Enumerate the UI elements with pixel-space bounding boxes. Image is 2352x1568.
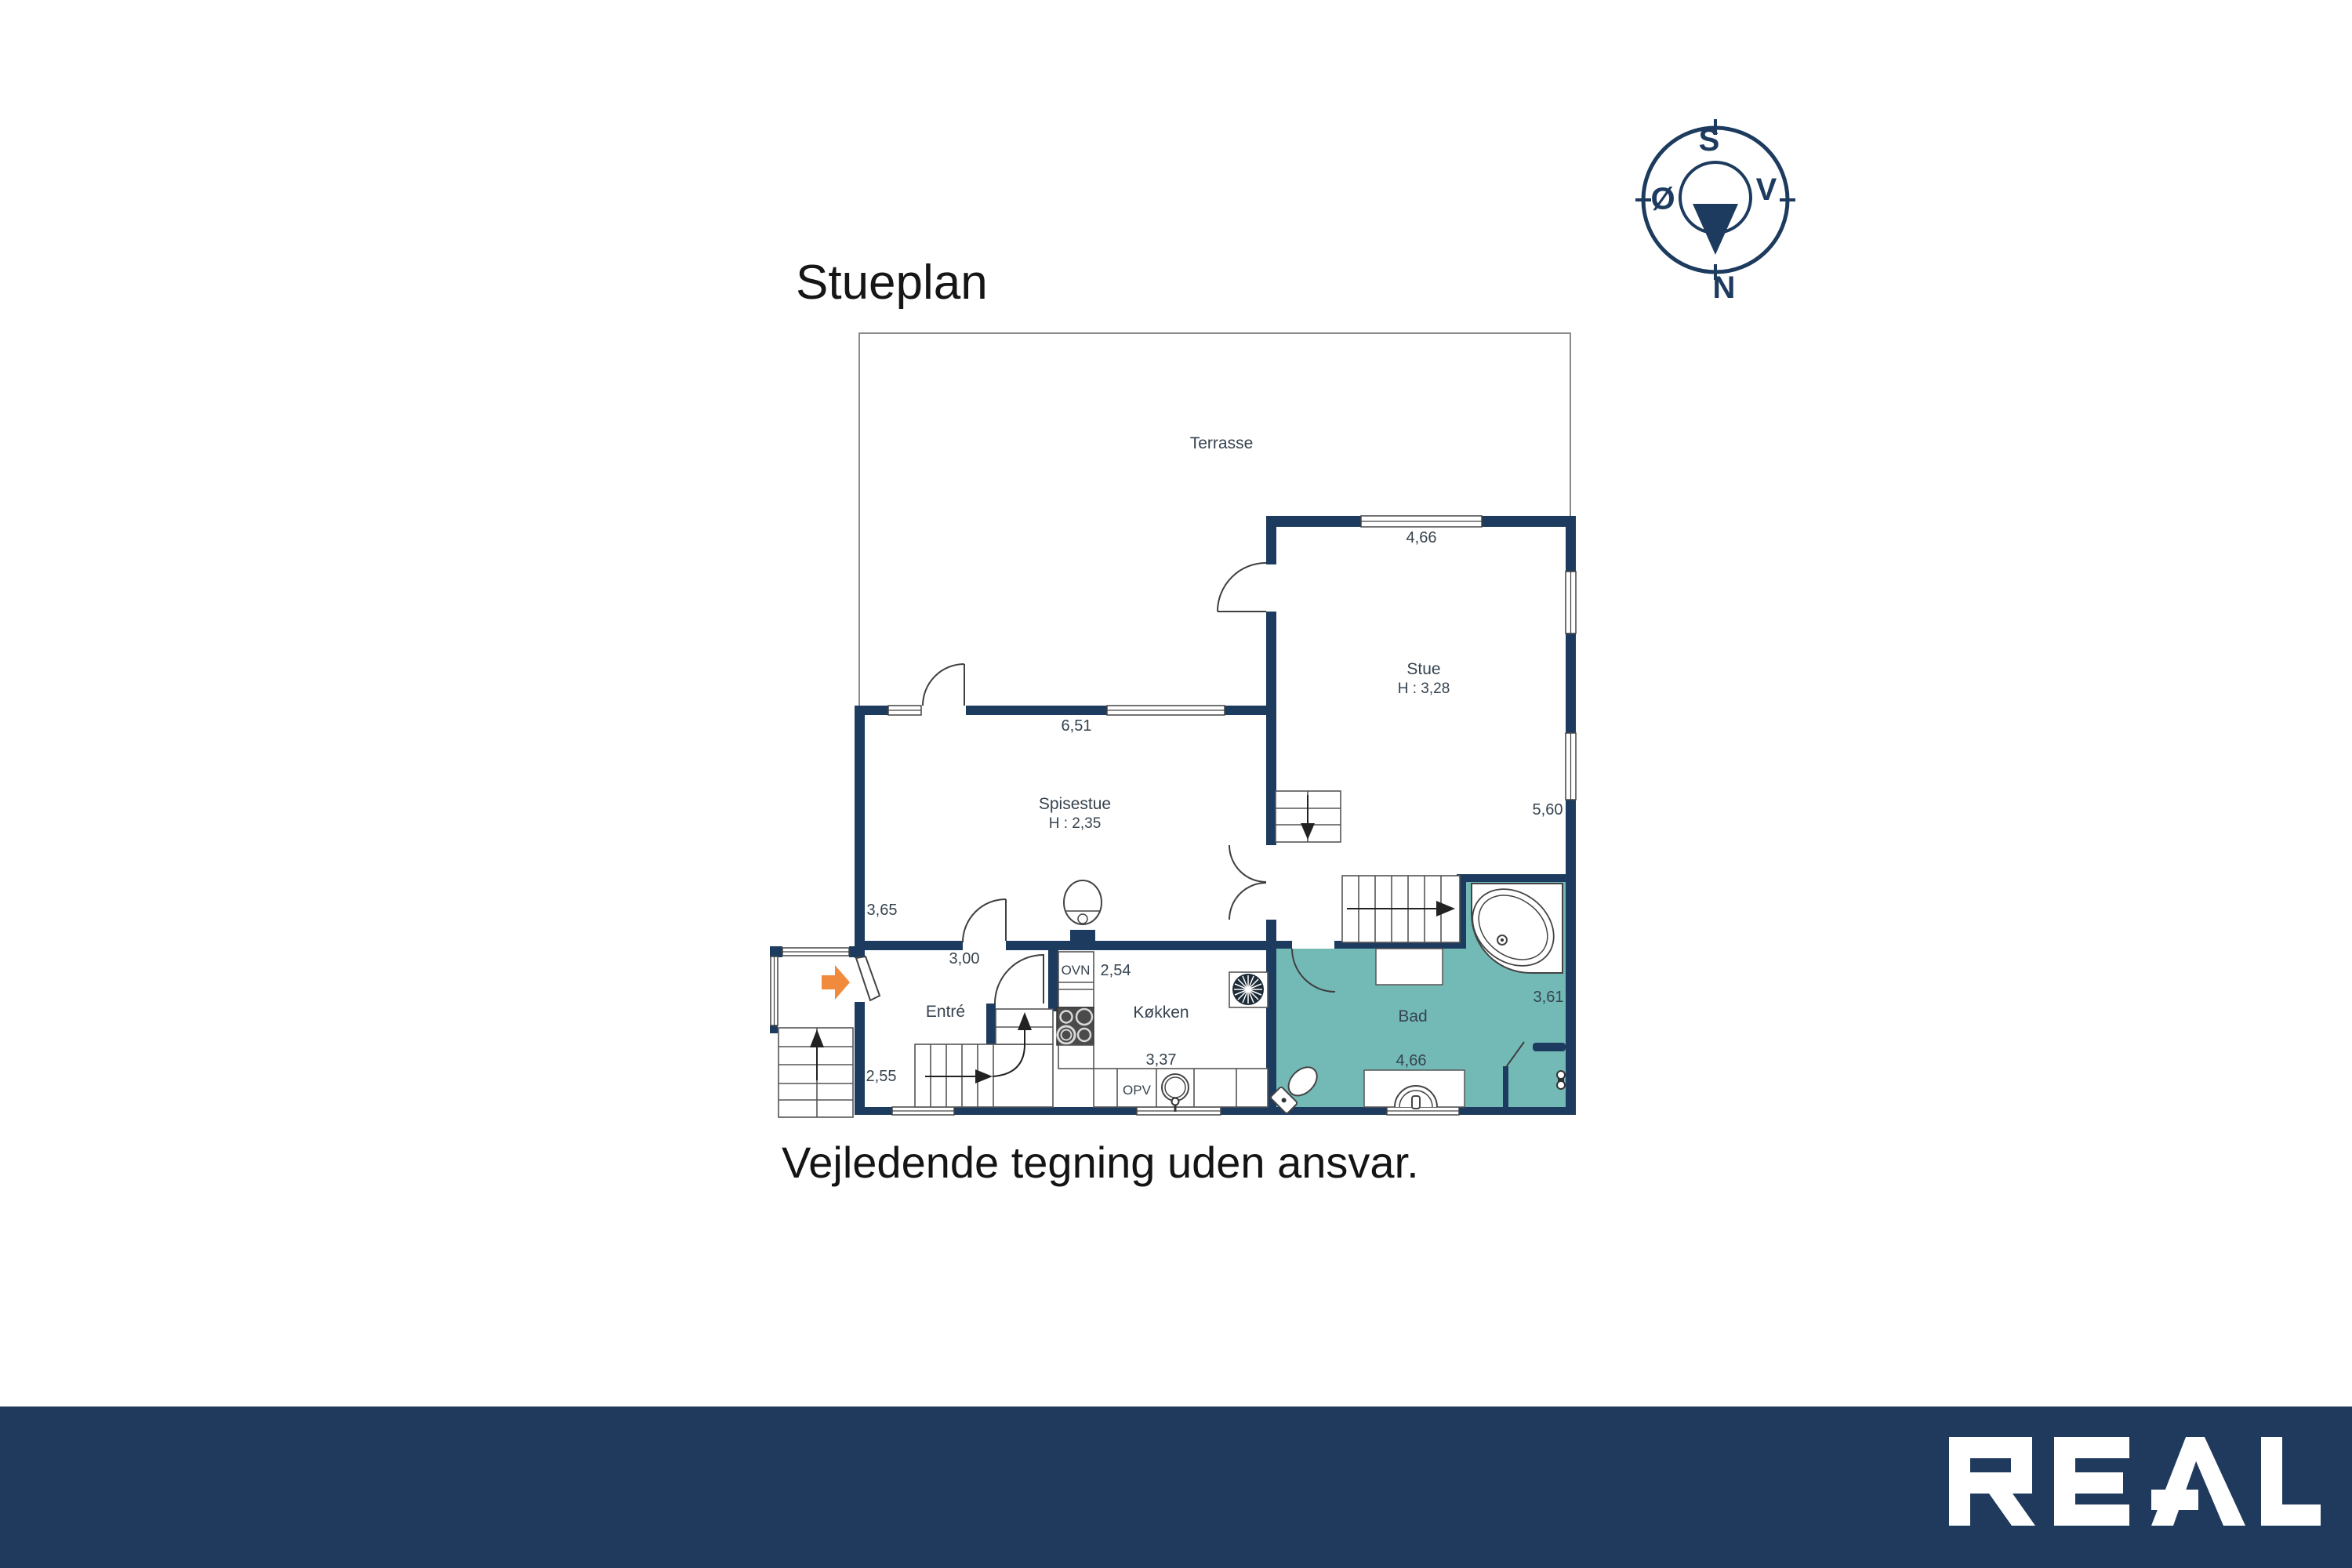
label-stue-height: H : 3,28 [1398,681,1450,697]
outdoor-stairs [779,1028,853,1117]
label-stue: Stue [1406,660,1440,678]
dim-bad-depth: 3,61 [1534,989,1564,1006]
entrance-arrow-icon [822,965,850,1000]
dim-entre-depth: 2,55 [866,1068,897,1085]
compass-west: V [1756,172,1777,207]
label-entre: Entré [926,1003,965,1021]
compass-south: S [1699,123,1720,158]
shower-valve-icon [1557,1071,1565,1089]
oven-cabinet [1058,952,1094,1007]
label-dishwasher: OPV [1123,1083,1152,1098]
kitchen-sink-icon [1162,1074,1189,1101]
floorplan-page: Stueplan S V Ø N [0,0,2352,1568]
compass-east: Ø [1650,182,1675,216]
label-oven: OVN [1062,963,1091,978]
label-kokken: Køkken [1133,1004,1189,1022]
page-title: Stueplan [796,256,988,310]
dim-spisestue-depth: 3,65 [867,902,898,919]
dim-entre-width: 3,00 [949,950,980,967]
label-bad: Bad [1398,1007,1427,1025]
compass-rose: S V Ø N [1635,119,1795,305]
dim-bad-width: 4,66 [1396,1052,1427,1069]
label-spisestue: Spisestue [1039,795,1111,813]
label-spisestue-height: H : 2,35 [1049,815,1102,832]
label-terrasse: Terrasse [1190,434,1254,452]
entrance-door-leaf [856,956,880,1000]
dim-spisestue-width: 6,51 [1062,717,1092,735]
wood-stove-icon [1064,880,1102,950]
dim-stue-depth: 5,60 [1533,801,1563,818]
floorplan-drawing: Stueplan S V Ø N [0,0,2352,1568]
stairs-up [1342,876,1460,942]
dim-stue-width: 4,66 [1406,529,1437,546]
disclaimer-text: Vejledende tegning uden ansvar. [782,1138,1419,1187]
compass-north: N [1713,270,1736,305]
dim-kokken-width: 3,37 [1146,1051,1177,1069]
footer-bar [0,1406,2352,1568]
stairs-down [1276,791,1341,842]
bathroom-sink-icon [1364,1070,1465,1109]
entre-stairs [915,1009,1053,1107]
understairs-niche [1376,949,1443,985]
ventilation-fan-icon [1232,974,1264,1005]
dim-kokken-dim: 2,54 [1101,962,1131,979]
